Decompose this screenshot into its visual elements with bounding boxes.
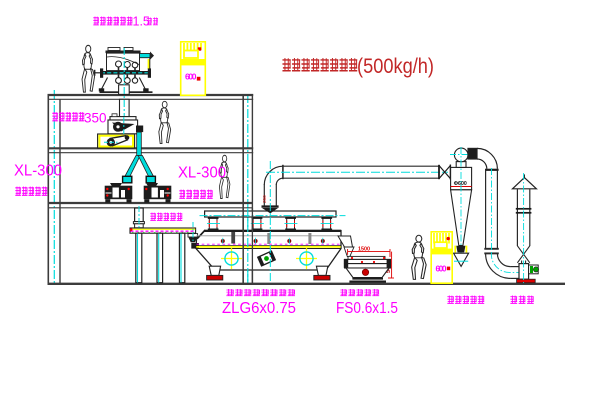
svg-text:(500kg/h): (500kg/h) — [357, 55, 434, 78]
svg-text:600: 600 — [436, 265, 448, 274]
svg-text:Φ600: Φ600 — [454, 181, 467, 187]
svg-text:1.5: 1.5 — [133, 15, 150, 29]
svg-text:XL-300: XL-300 — [178, 165, 226, 182]
svg-text:600: 600 — [185, 72, 197, 82]
svg-text:ZLG6x0.75: ZLG6x0.75 — [222, 300, 296, 317]
svg-text:250: 250 — [262, 195, 267, 203]
svg-text:1500: 1500 — [358, 247, 370, 253]
svg-text:XL-300: XL-300 — [14, 163, 62, 180]
svg-text:FS0.6x1.5: FS0.6x1.5 — [336, 300, 398, 317]
svg-text:350: 350 — [84, 111, 107, 126]
